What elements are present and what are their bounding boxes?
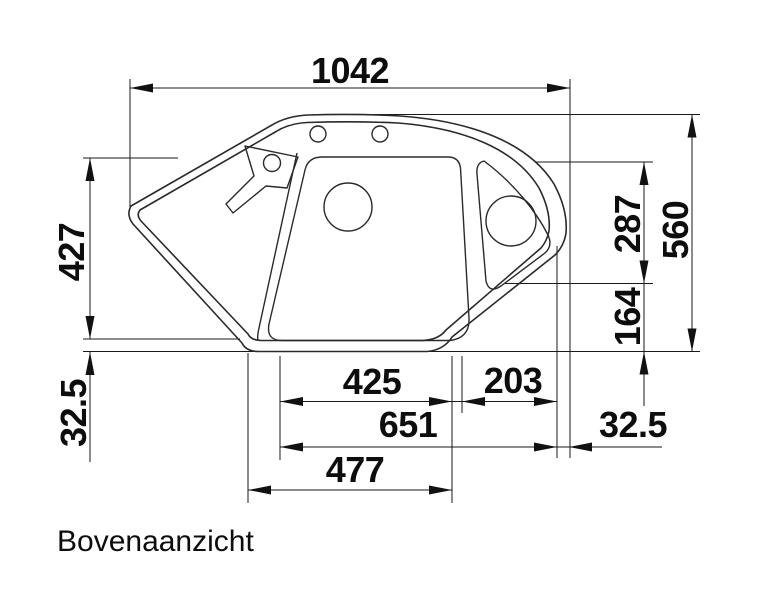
tap-hole-left [310, 126, 326, 142]
corner-basin-drain-hole [486, 196, 536, 246]
dimension-labels: 1042 427 32.5 287 560 164 425 203 651 32… [51, 50, 696, 490]
dim-left-depth: 427 [51, 223, 92, 282]
main-basin-drain-hole [324, 183, 372, 231]
dim-rim-bottom-left: 32.5 [53, 378, 94, 447]
sink-top-view-drawing: 1042 427 32.5 287 560 164 425 203 651 32… [0, 0, 766, 600]
dim-corner-upper: 287 [607, 195, 648, 254]
dim-total-width: 1042 [311, 50, 389, 91]
corner-basin [477, 161, 550, 289]
dim-bottom-width: 477 [326, 449, 385, 490]
dim-main-basin-width: 425 [343, 361, 402, 402]
main-basin [269, 157, 470, 341]
dim-inner-width: 651 [379, 404, 438, 445]
dim-corner-lower: 164 [607, 287, 648, 346]
sink-outer-rim [129, 114, 566, 351]
sink-outline [129, 114, 566, 351]
technical-drawing-page: 1042 427 32.5 287 560 164 425 203 651 32… [0, 0, 766, 600]
dim-total-depth: 560 [655, 201, 696, 260]
dim-corner-basin-width: 203 [484, 360, 543, 401]
view-caption: Bovenaanzicht [57, 525, 254, 558]
dim-rim-right: 32.5 [599, 404, 668, 445]
faucet-symbol [226, 146, 298, 213]
tap-hole-right [372, 126, 388, 142]
drainboard-divider-wall [258, 153, 297, 341]
faucet-hole [264, 155, 281, 172]
